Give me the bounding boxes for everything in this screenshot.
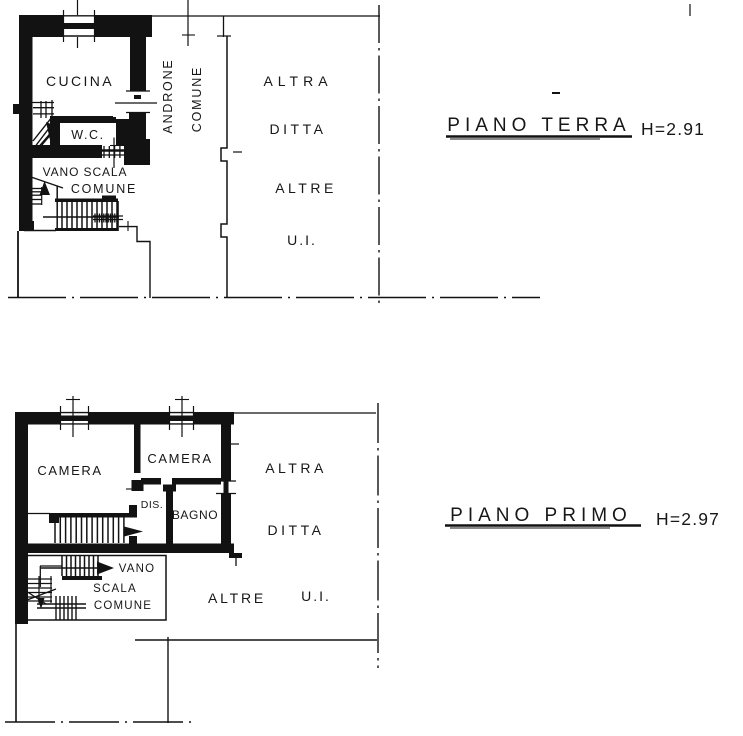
- svg-text:VANO: VANO: [119, 563, 156, 575]
- svg-text:H=2.97: H=2.97: [656, 509, 720, 529]
- svg-text:PIANO TERRA: PIANO TERRA: [447, 115, 630, 136]
- svg-text:DITTA: DITTA: [270, 121, 327, 137]
- svg-text:COMUNE: COMUNE: [190, 66, 204, 132]
- svg-text:CAMERA: CAMERA: [147, 451, 212, 466]
- svg-text:CAMERA: CAMERA: [37, 463, 102, 478]
- svg-text:U.I.: U.I.: [301, 588, 331, 604]
- svg-text:VANO SCALA: VANO SCALA: [43, 165, 128, 179]
- svg-text:U.I.: U.I.: [287, 232, 317, 248]
- svg-text:DITTA: DITTA: [268, 522, 325, 538]
- svg-text:ALTRA: ALTRA: [265, 460, 327, 476]
- svg-text:ALTRA: ALTRA: [263, 73, 332, 89]
- svg-text:CUCINA: CUCINA: [46, 73, 114, 89]
- svg-text:COMUNE: COMUNE: [71, 182, 137, 196]
- svg-text:ALTRE: ALTRE: [208, 590, 266, 606]
- svg-text:COMUNE: COMUNE: [94, 600, 152, 612]
- svg-text:ANDRONE: ANDRONE: [161, 58, 175, 133]
- svg-text:PIANO PRIMO: PIANO PRIMO: [450, 505, 632, 526]
- svg-text:W.C.: W.C.: [71, 128, 104, 142]
- svg-text:ALTRE: ALTRE: [275, 180, 337, 196]
- svg-text:BAGNO: BAGNO: [172, 508, 218, 522]
- svg-text:DIS.: DIS.: [141, 499, 163, 511]
- svg-text:SCALA: SCALA: [93, 583, 137, 595]
- svg-text:H=2.91: H=2.91: [641, 119, 705, 139]
